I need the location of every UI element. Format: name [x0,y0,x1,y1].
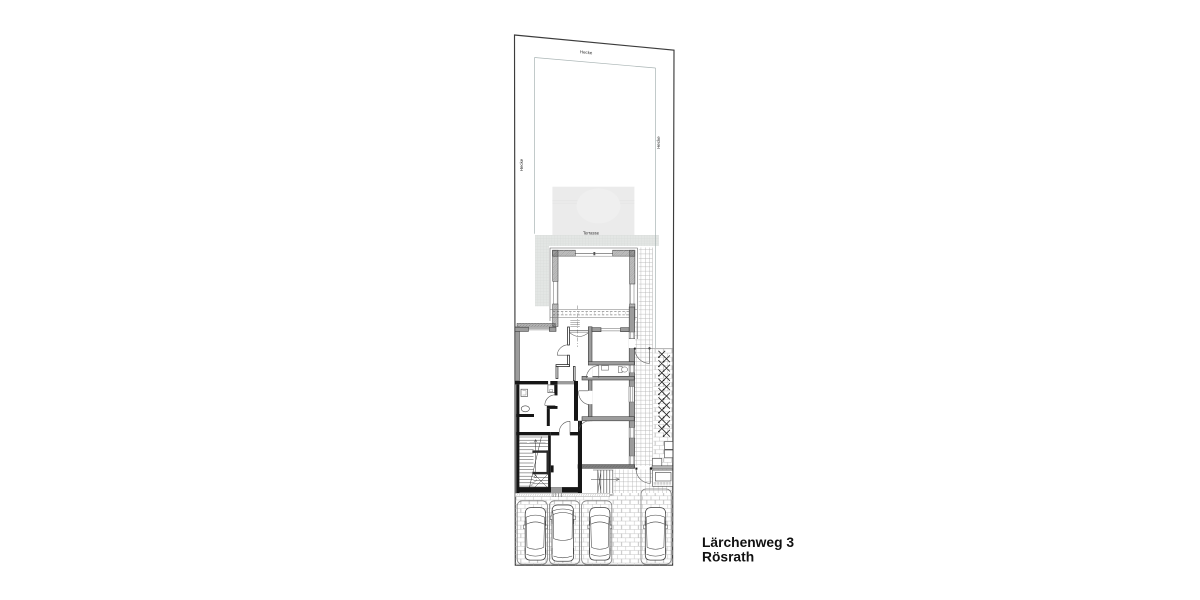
svg-text:Terrasse: Terrasse [583,230,600,235]
svg-text:Rösrath: Rösrath [702,549,754,564]
svg-text:Hecke: Hecke [519,158,524,171]
svg-text:Lärchenweg 3: Lärchenweg 3 [702,535,794,550]
svg-text:Hecke: Hecke [656,136,661,149]
